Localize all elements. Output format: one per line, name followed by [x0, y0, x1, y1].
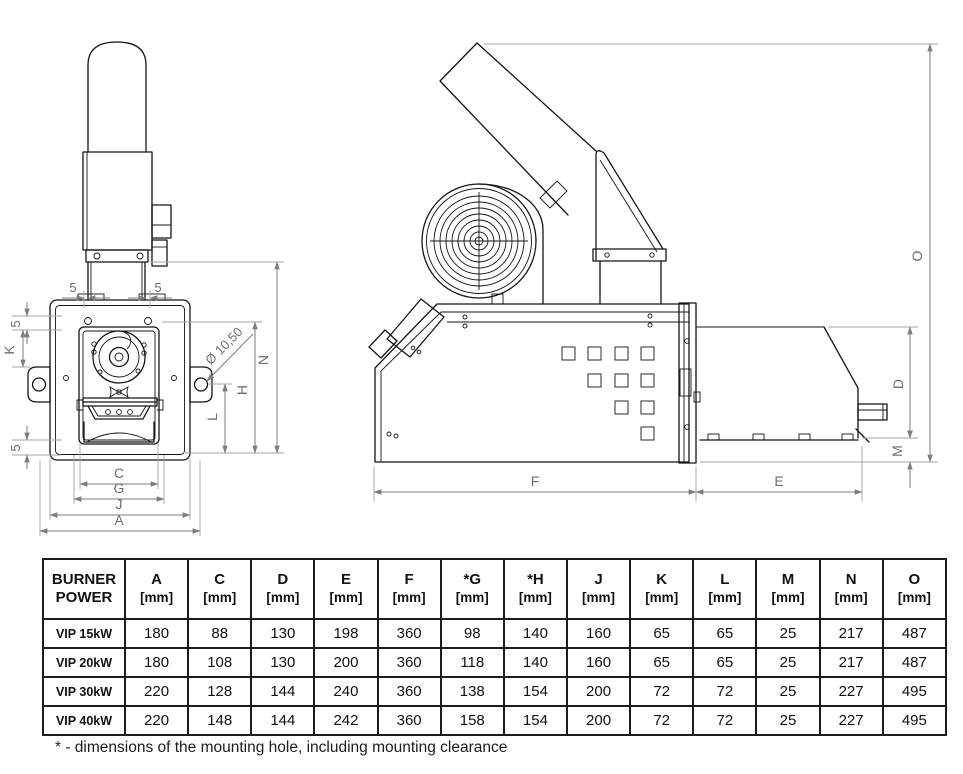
col-header-h: *H [mm] — [504, 559, 567, 619]
col-header-burner-power: BURNER POWER — [43, 559, 125, 619]
col-header-a: A [mm] — [125, 559, 188, 619]
dim-label-d: D — [890, 379, 906, 389]
burner-dimension-drawing: 5 5 5 K 5 Ø 10,50 — [0, 0, 963, 548]
col-header-e: E [mm] — [314, 559, 377, 619]
dim-label-f: F — [531, 473, 540, 489]
feed-tube — [88, 42, 146, 152]
model-cell: VIP 20kW — [43, 648, 125, 677]
motor-housing — [83, 152, 152, 250]
table-header-row: BURNER POWER A [mm] C [mm] D [mm] E [m — [43, 559, 946, 619]
mounting-plate — [50, 300, 190, 460]
wing-nut — [110, 387, 128, 397]
model-cell: VIP 30kW — [43, 677, 125, 706]
side-view: F E D M O — [369, 43, 938, 502]
dim-label-o: O — [909, 250, 925, 261]
model-cell: VIP 40kW — [43, 706, 125, 735]
dim-label-hole-diameter: Ø 10,50 — [202, 324, 245, 367]
dim-label-h: H — [234, 385, 250, 395]
dim-label-c: C — [114, 465, 124, 481]
technical-drawing-page: 5 5 5 K 5 Ø 10,50 — [0, 0, 963, 774]
mounting-hole — [79, 327, 159, 444]
hopper-tube — [440, 43, 596, 215]
dim-label-k: K — [1, 345, 17, 355]
col-header-g: *G [mm] — [441, 559, 504, 619]
col-header-c: C [mm] — [188, 559, 251, 619]
col-header-j: J [mm] — [567, 559, 630, 619]
table-row-vip-30kw: VIP 30kW 220 128 144 240 360 138 154 200… — [43, 677, 946, 706]
model-cell: VIP 15kW — [43, 619, 125, 648]
igniter-assembly — [369, 299, 444, 358]
dim-label-a: A — [114, 512, 124, 528]
fan — [422, 184, 543, 304]
col-header-d: D [mm] — [251, 559, 314, 619]
dim-label-offset-top-right: 5 — [154, 280, 161, 295]
dim-label-j: J — [116, 496, 123, 512]
side-dimensions: F E D M O — [374, 44, 938, 502]
blower-opening — [92, 331, 146, 383]
support-bracket — [593, 151, 666, 304]
dim-label-offset-left-bottom: 5 — [8, 444, 23, 451]
dim-label-offset-top-left: 5 — [69, 280, 76, 295]
front-view: 5 5 5 K 5 Ø 10,50 — [1, 42, 284, 536]
lower-arch — [84, 422, 154, 442]
table-row-vip-40kw: VIP 40kW 220 148 144 242 360 158 154 200… — [43, 706, 946, 735]
burner-tray — [77, 398, 163, 419]
table-row-vip-15kw: VIP 15kW 180 88 130 198 360 98 140 160 6… — [43, 619, 946, 648]
col-header-n: N [mm] — [820, 559, 883, 619]
dim-label-e: E — [774, 473, 783, 489]
col-header-o: O [mm] — [883, 559, 946, 619]
burner-tube — [696, 327, 887, 442]
dim-label-offset-left-top: 5 — [8, 320, 23, 327]
main-body — [375, 304, 689, 462]
vent-holes — [562, 347, 654, 440]
dim-label-n: N — [255, 355, 271, 365]
side-attachment — [152, 205, 171, 238]
dim-label-l: L — [204, 413, 220, 421]
col-header-m: M [mm] — [756, 559, 819, 619]
col-header-f: F [mm] — [378, 559, 441, 619]
col-header-k: K [mm] — [630, 559, 693, 619]
table-row-vip-20kw: VIP 20kW 180 108 130 200 360 118 140 160… — [43, 648, 946, 677]
dim-label-g: G — [114, 480, 125, 496]
front-dimensions: 5 5 5 K 5 Ø 10,50 — [1, 262, 284, 536]
dimensions-table: BURNER POWER A [mm] C [mm] D [mm] E [m — [42, 558, 947, 736]
col-header-l: L [mm] — [693, 559, 756, 619]
mounting-hole-footnote: * - dimensions of the mounting hole, inc… — [55, 739, 507, 757]
dim-label-m: M — [889, 445, 905, 457]
